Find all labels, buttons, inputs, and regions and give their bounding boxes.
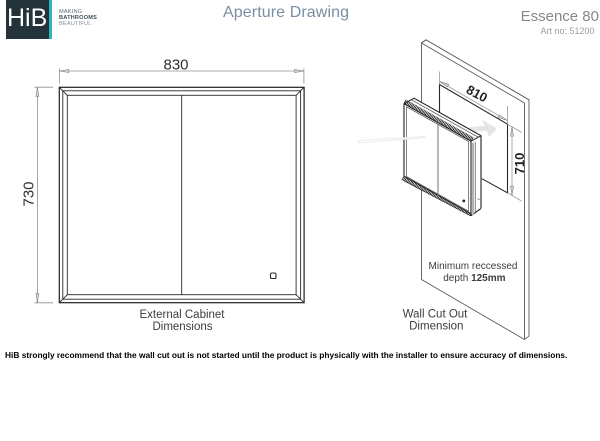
svg-text:710: 710 bbox=[512, 153, 527, 175]
svg-text:External Cabinet: External Cabinet bbox=[139, 309, 225, 321]
svg-text:depth 125mm: depth 125mm bbox=[443, 273, 505, 284]
svg-text:Dimension: Dimension bbox=[409, 321, 463, 333]
svg-text:Wall Cut Out: Wall Cut Out bbox=[403, 309, 469, 321]
svg-text:810: 810 bbox=[464, 82, 490, 105]
svg-text:Dimensions: Dimensions bbox=[152, 321, 212, 333]
svg-text:730: 730 bbox=[21, 181, 38, 206]
svg-text:830: 830 bbox=[163, 57, 188, 74]
svg-text:Minimum reccessed: Minimum reccessed bbox=[429, 261, 518, 272]
